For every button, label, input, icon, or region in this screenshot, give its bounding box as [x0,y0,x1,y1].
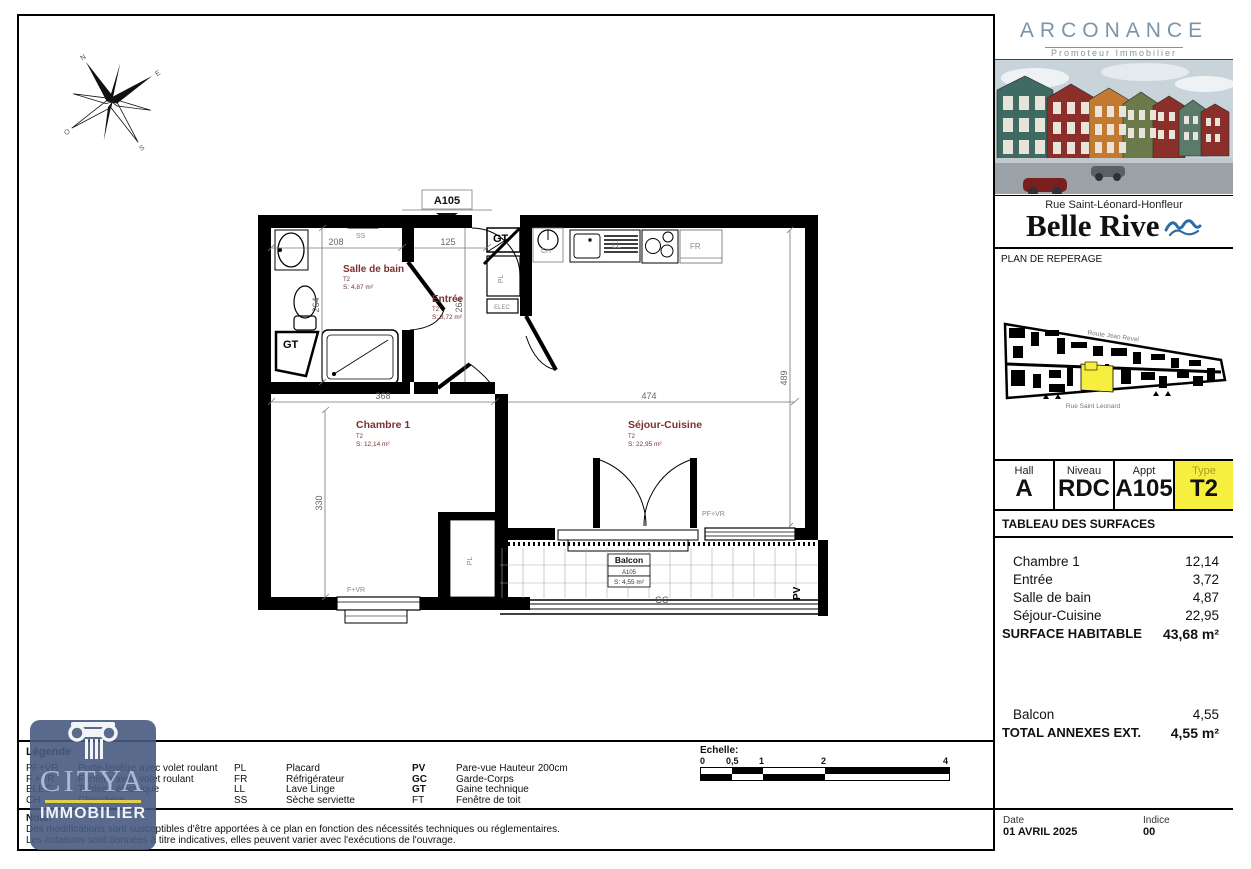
svg-text:330: 330 [314,495,324,510]
plan-sheet: N S E O A105 [0,0,1251,869]
svg-text:S: 12,14 m²: S: 12,14 m² [356,441,390,448]
salle-de-bain-label: Salle de bain [343,264,404,275]
svg-text:PF+VR: PF+VR [702,511,725,518]
developer-tagline: Promoteur Immobilier [1045,47,1183,58]
compass-north-label: N [79,54,87,63]
project-name: Belle Rive [1026,208,1159,243]
gt-top-label: GT [493,233,509,245]
sejour-window [705,528,795,540]
balcon-tag: A105 [622,570,637,576]
svg-text:CH: CH [541,248,551,255]
svg-text:208: 208 [328,237,343,247]
site-plan: Route Jean Revel Rue Saint Leonard [1001,304,1229,416]
developer-logo: ARCONANCE Promoteur Immobilier [995,14,1233,60]
reperage-title: PLAN DE REPERAGE [995,249,1233,265]
scale-bar: Echelle: 0 0,5 1 2 4 [700,745,955,781]
date-field: Date 01 AVRIL 2025 [1003,815,1077,838]
svg-text:S: 3,72 m²: S: 3,72 m² [432,314,463,321]
annex-row: Balcon4,55 [995,705,1233,723]
svg-text:S: 4,87 m²: S: 4,87 m² [343,284,374,291]
scale-tick-labels: 0 0,5 1 2 4 [700,756,955,767]
svg-text:SS: SS [356,233,366,240]
project-photo-illustration [995,60,1233,194]
scale-title: Echelle: [700,745,955,756]
reperage-section: PLAN DE REPERAGE [995,249,1233,461]
title-block-sidebar: ARCONANCE Promoteur Immobilier [993,14,1233,851]
svg-text:FR: FR [690,242,701,251]
entree-label: Entrée [432,294,464,305]
project-photo [995,60,1233,196]
gc-label: GC [655,595,669,605]
legend-column-2: PLPlacard FRRéfrigérateur LLLave Linge S… [234,764,355,806]
type-cell: Type T2 [1175,461,1233,509]
appt-cell: Appt A105 [1115,461,1175,509]
svg-text:F+VR: F+VR [347,587,365,594]
svg-text:368: 368 [375,391,390,401]
citya-brand: CITYA [30,763,156,799]
project-identity: Rue Saint-Léonard-Honfleur Belle Rive [995,196,1233,249]
floor-plan: A105 [250,180,840,650]
french-door [558,458,698,551]
walls [258,215,828,616]
citya-yellow-rule [45,800,141,803]
balcony: Balcon A105 S: 4,55 m² GC PV [498,544,822,614]
annex-total-row: TOTAL ANNEXES EXT.4,55 m² [995,723,1233,742]
surfaces-title: TABLEAU DES SURFACES [995,511,1233,538]
svg-text:T2: T2 [432,307,440,313]
svg-text:125: 125 [440,237,455,247]
niveau-cell: Niveau RDC [1055,461,1115,509]
svg-text:T2: T2 [628,434,636,440]
surface-row: Entrée3,72 [995,570,1233,588]
doors [408,228,556,388]
chambre-window [337,597,420,623]
svg-text:S: 22,95 m²: S: 22,95 m² [628,441,662,448]
svg-text:489: 489 [779,370,789,385]
citya-sub: IMMOBILIER [30,805,156,823]
balcon-label: Balcon [615,555,643,565]
balcon-surface: S: 4,55 m² [614,579,645,586]
compass-rose-icon: N S E O [52,42,172,162]
svg-text:A105: A105 [434,195,460,207]
indice-field: Indice 00 [1143,815,1170,838]
dimension-labels: 208 125 264 264 368 474 330 489 [311,237,789,511]
hall-cell: Hall A [995,461,1055,509]
chambre1-label: Chambre 1 [356,419,410,431]
svg-text:LL: LL [612,241,621,250]
wave-logo-icon [1164,216,1202,238]
developer-name: ARCONANCE [995,19,1233,43]
surfaces-table: TABLEAU DES SURFACES Chambre 112,14 Entr… [995,511,1233,808]
surface-row: Salle de bain4,87 [995,588,1233,606]
scale-bar-graphic [700,767,950,781]
surface-row: Chambre 112,14 [995,552,1233,570]
svg-text:474: 474 [641,391,656,401]
gt-bath-label: GT [283,339,299,351]
svg-text:264: 264 [311,297,321,312]
svg-text:T2: T2 [343,277,351,283]
compass-south-label: S [138,144,146,153]
citya-watermark: CITYA IMMOBILIER [30,720,156,850]
unit-info-table: Hall A Niveau RDC Appt A105 Type T2 [995,461,1233,511]
nota-box: Nota: Des modifications sont susceptible… [17,810,993,851]
surface-row: Séjour-Cuisine22,95 [995,606,1233,624]
surface-total-row: SURFACE HABITABLE43,68 m² [995,624,1233,643]
svg-text:ELEC: ELEC [494,305,510,311]
title-block-footer: Date 01 AVRIL 2025 Indice 00 [995,808,1233,851]
svg-text:PL: PL [498,275,505,284]
road-bottom-label: Rue Saint Leonard [1066,403,1121,410]
sejour-label: Séjour-Cuisine [628,419,702,431]
compass-east-label: E [154,69,162,78]
compass-west-label: O [63,128,72,137]
svg-text:PL: PL [467,557,474,566]
citya-column-icon [63,720,123,762]
pv-label: PV [792,586,803,600]
legend-column-3: PVPare-vue Hauteur 200cm GCGarde-Corps G… [412,764,568,806]
svg-text:T2: T2 [356,434,364,440]
